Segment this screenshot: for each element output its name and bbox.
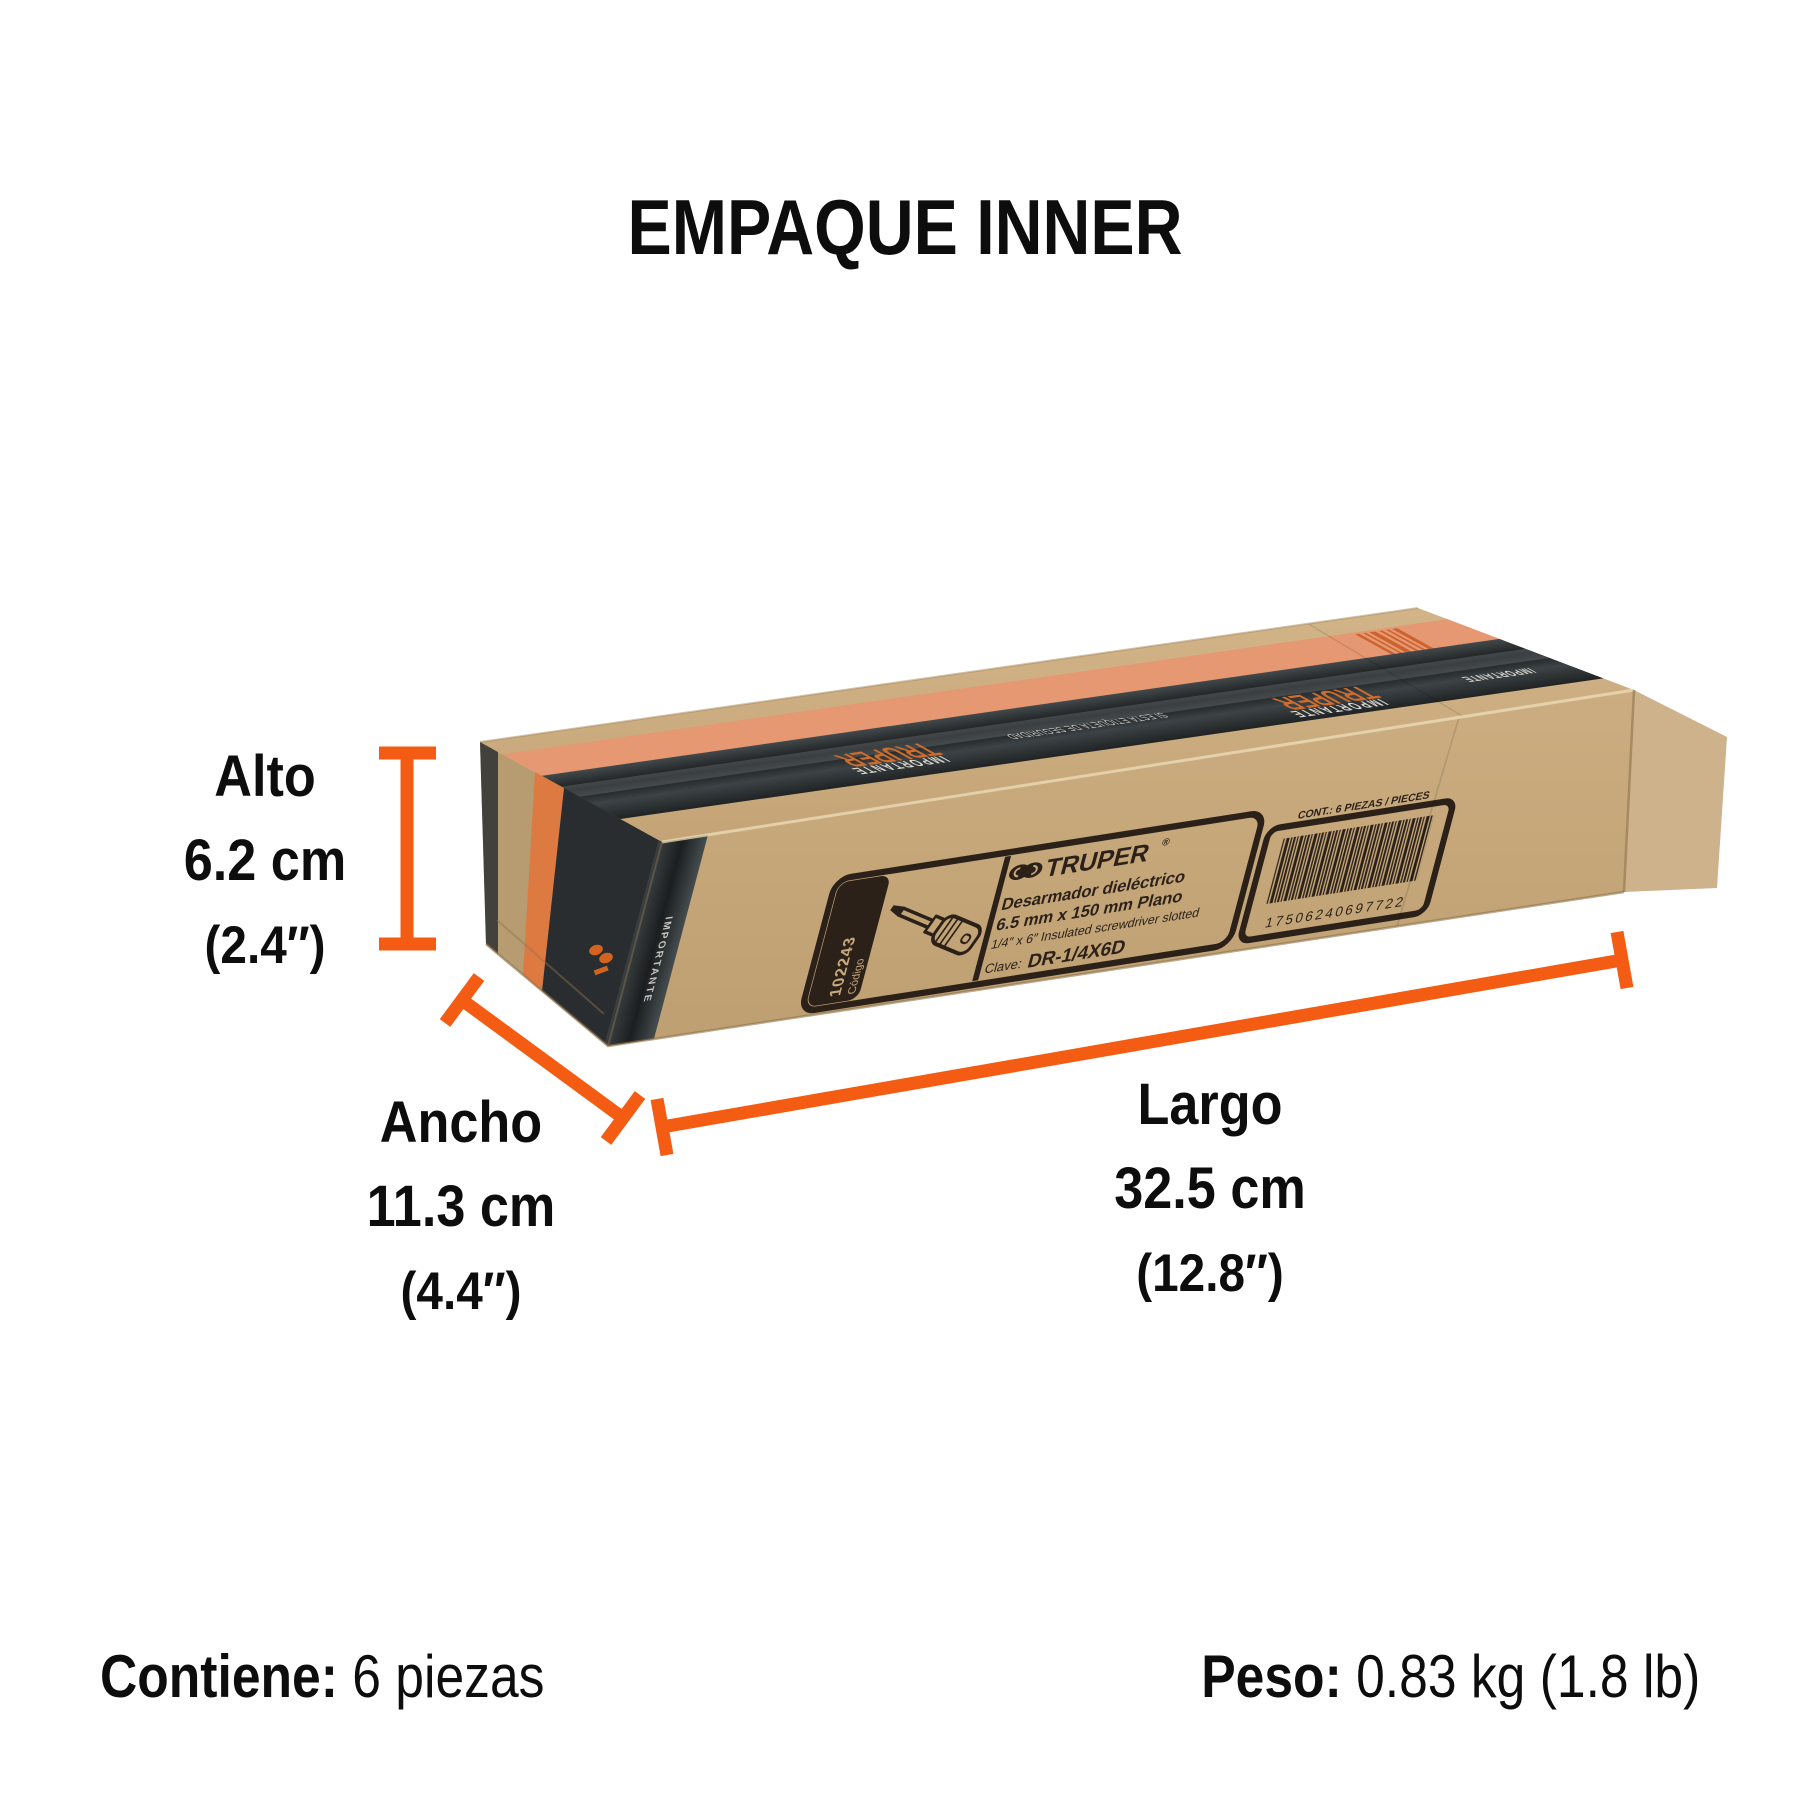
contains-label: Contiene: bbox=[100, 1643, 338, 1710]
empaque-inner-diagram: TRUPER IMPORTANTE SI ESTA ETIQUETA DE SE… bbox=[0, 0, 1800, 1800]
largo-name: Largo bbox=[1080, 1064, 1341, 1146]
carton-box: TRUPER IMPORTANTE SI ESTA ETIQUETA DE SE… bbox=[420, 588, 1742, 1055]
ancho-inch: (4.4″) bbox=[331, 1250, 592, 1334]
page-title: EMPAQUE INNER bbox=[140, 182, 1670, 273]
alto-cm: 6.2 cm bbox=[135, 818, 396, 904]
largo-dimension-label: Largo 32.5 cm (12.8″) bbox=[1080, 1064, 1341, 1316]
ancho-dimension-label: Ancho 11.3 cm (4.4″) bbox=[331, 1082, 592, 1334]
ancho-cm: 11.3 cm bbox=[331, 1164, 592, 1250]
contains-value: 6 piezas bbox=[352, 1643, 544, 1710]
alto-dimension-label: Alto 6.2 cm (2.4″) bbox=[135, 736, 396, 988]
box-right-face bbox=[1624, 690, 1727, 892]
ancho-name: Ancho bbox=[331, 1082, 592, 1164]
largo-inch: (12.8″) bbox=[1080, 1232, 1341, 1316]
alto-name: Alto bbox=[135, 736, 396, 818]
contains-line: Contiene: 6 piezas bbox=[100, 1642, 544, 1711]
weight-value: 0.83 kg (1.8 lb) bbox=[1356, 1643, 1700, 1710]
alto-inch: (2.4″) bbox=[135, 904, 396, 988]
largo-cm: 32.5 cm bbox=[1080, 1146, 1341, 1232]
weight-line: Peso: 0.83 kg (1.8 lb) bbox=[1201, 1642, 1700, 1711]
weight-label: Peso: bbox=[1201, 1643, 1342, 1710]
